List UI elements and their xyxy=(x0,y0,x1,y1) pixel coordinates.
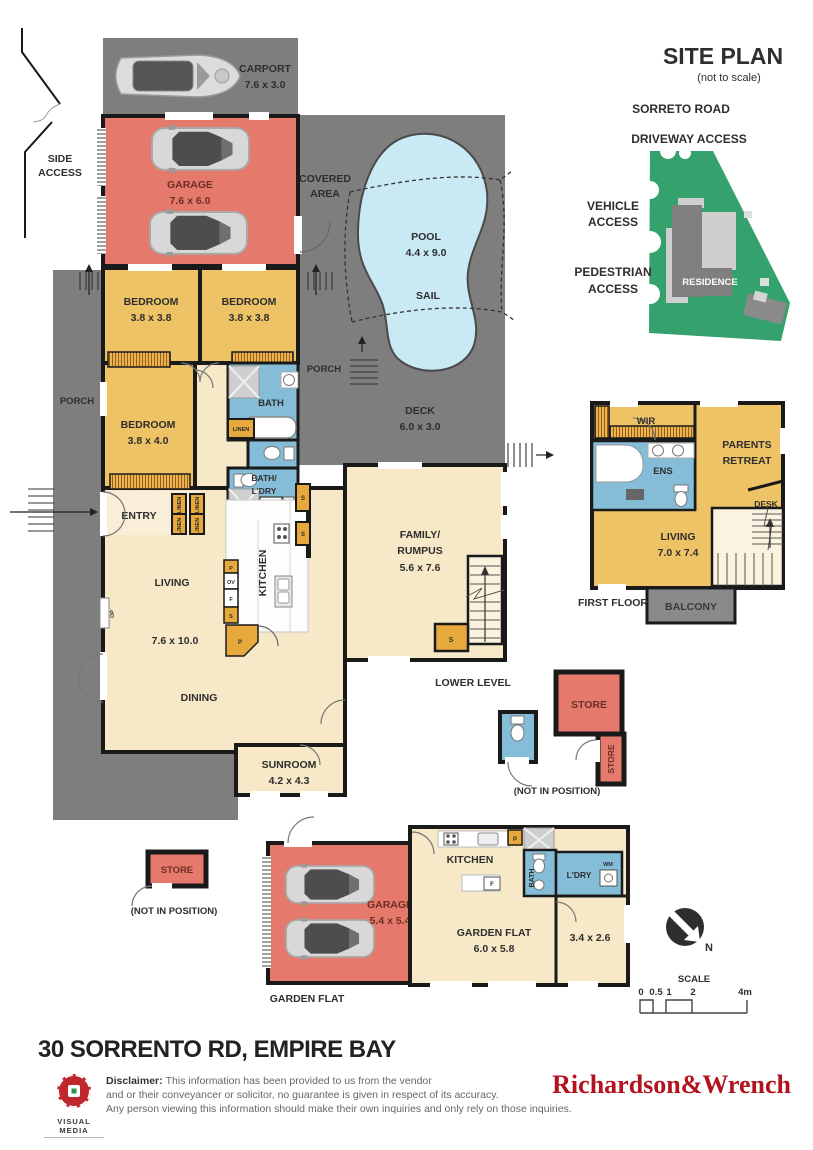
window xyxy=(700,400,738,407)
store-cupboard-label: S xyxy=(301,532,305,538)
pantry-label: P xyxy=(513,837,517,843)
road-label: SORRETO ROAD xyxy=(632,102,730,116)
store-cupboard-label: S xyxy=(229,614,233,620)
pedestrian-access-label: PEDESTRIAN xyxy=(574,265,651,279)
first-living-dims: 7.0 x 7.4 xyxy=(658,547,699,559)
car-icon xyxy=(152,125,249,173)
linen-label: LINEN xyxy=(195,518,201,535)
op-label: OP xyxy=(110,610,116,618)
garage-dims: 7.6 x 6.0 xyxy=(170,195,211,207)
visual-media-logo-text: VISUAL MEDIA xyxy=(44,1117,104,1135)
window xyxy=(598,584,626,591)
desk-label: DESK xyxy=(754,499,778,509)
vehicle-access-label: ACCESS xyxy=(588,215,638,229)
sunroom-label: SUNROOM xyxy=(262,759,317,771)
side-access-label: SIDE xyxy=(48,153,73,165)
door-arc xyxy=(576,740,596,760)
toilet-icon xyxy=(674,485,688,507)
flat-name-label: GARDEN FLAT xyxy=(457,927,532,939)
garage-door-gap xyxy=(165,112,213,120)
living-dims: 7.6 x 10.0 xyxy=(152,635,199,647)
pantry-label: P xyxy=(229,566,233,572)
bedroom-label: BEDROOM xyxy=(124,296,179,308)
basin-icon xyxy=(653,445,664,456)
floor-plan-canvas: SIDE ACCESS POOL 4.4 x 9.0 SAIL PORCH PO… xyxy=(0,0,813,1030)
living-label: LIVING xyxy=(154,577,189,589)
stairs xyxy=(466,556,504,644)
flat-room-dims: 3.4 x 2.6 xyxy=(570,932,611,944)
flat-garage-dims: 5.4 x 5.4 xyxy=(370,915,411,927)
window xyxy=(250,791,280,798)
footer: 30 SORRENTO RD, EMPIRE BAY VISUAL MEDIA … xyxy=(0,1030,813,1150)
toilet-icon xyxy=(511,716,524,741)
page-title: 30 SORRENTO RD, EMPIRE BAY xyxy=(38,1036,396,1064)
basin-icon xyxy=(673,445,684,456)
kitchen-bench xyxy=(438,831,510,847)
fridge-label: F xyxy=(490,882,494,888)
disclaimer: Disclaimer:This information has been pro… xyxy=(106,1074,576,1116)
store-label: STORE xyxy=(161,865,194,876)
door-arc xyxy=(132,886,152,906)
linen-label: LINEN xyxy=(177,497,183,514)
window xyxy=(568,981,598,988)
scale-tick: 0 xyxy=(638,987,643,998)
deck-label: DECK xyxy=(405,405,435,417)
disclaimer-line: Any person viewing this information shou… xyxy=(106,1102,576,1116)
agency-logo: Richardson&Wrench xyxy=(552,1070,791,1100)
scale-tick: 0.5 xyxy=(649,987,663,998)
bath-ldry-label: L'DRY xyxy=(252,486,277,496)
bedroom-dims: 3.8 x 3.8 xyxy=(131,312,172,324)
sunroom-dims: 4.2 x 4.3 xyxy=(269,775,310,787)
residence-label: RESIDENCE xyxy=(682,277,737,288)
window xyxy=(624,905,631,943)
fireplace xyxy=(100,598,109,628)
flat-kitchen-label: KITCHEN xyxy=(447,854,494,866)
first-living-label: LIVING xyxy=(660,531,695,543)
visual-media-rule xyxy=(44,1137,104,1140)
flat-bath-label: BATH xyxy=(529,869,536,888)
car-icon xyxy=(286,917,374,959)
window xyxy=(128,264,172,271)
entry-label: ENTRY xyxy=(121,510,156,522)
garage-roller-door xyxy=(262,856,271,968)
disclaimer-label: Disclaimer: xyxy=(106,1075,163,1087)
side-access-label: ACCESS xyxy=(38,167,82,179)
store-cupboard-label: S xyxy=(301,496,305,502)
wm-label: WM xyxy=(603,862,613,868)
visual-media-logo: VISUAL MEDIA xyxy=(44,1072,104,1140)
flat-ldry-label: L'DRY xyxy=(567,870,592,880)
shower xyxy=(524,828,554,852)
boat-icon xyxy=(116,55,240,97)
door-arc xyxy=(508,762,532,786)
porch-right-label: PORCH xyxy=(307,364,341,375)
family-label: FAMILY/ xyxy=(400,529,441,541)
driveway-access-label: DRIVEWAY ACCESS xyxy=(631,132,747,146)
scale-tick: 4m xyxy=(738,987,752,998)
family-label: RUMPUS xyxy=(397,545,443,557)
porch-left-label: PORCH xyxy=(60,396,94,407)
linen-label: LINEN xyxy=(233,427,250,433)
door-gap xyxy=(152,883,172,889)
site-plan-title: SITE PLAN xyxy=(663,43,783,69)
sink-icon xyxy=(275,576,292,607)
scale-tick: 2 xyxy=(690,987,695,998)
scale-bar xyxy=(640,1000,747,1013)
store-label: STORE xyxy=(606,744,616,773)
window xyxy=(300,791,328,798)
window xyxy=(780,428,787,454)
bedroom-label: BEDROOM xyxy=(121,419,176,431)
car-icon xyxy=(286,863,374,905)
basin-icon xyxy=(284,375,295,386)
site-plan-subtitle: (not to scale) xyxy=(697,72,761,84)
parents-retreat-label: RETREAT xyxy=(723,455,772,467)
window xyxy=(430,981,472,988)
sail-label: SAIL xyxy=(416,290,441,302)
bath-ldry-label: BATH/ xyxy=(251,473,277,483)
pantry-label: P xyxy=(238,640,242,646)
first-floor-label: FIRST FLOOR xyxy=(578,597,648,609)
garage-label: GARAGE xyxy=(167,179,213,191)
sliding-door-gap xyxy=(378,462,422,469)
window xyxy=(501,515,508,539)
wir-label: WIR xyxy=(637,416,656,427)
side-access-boundary xyxy=(22,28,60,238)
visual-media-logo-icon xyxy=(55,1072,93,1110)
flat-dims: 6.0 x 5.8 xyxy=(474,943,515,955)
not-in-position-label: (NOT IN POSITION) xyxy=(514,786,601,797)
garden-flat-label: GARDEN FLAT xyxy=(270,993,345,1005)
covered-area-label: AREA xyxy=(310,188,340,200)
carport-label: CARPORT xyxy=(239,63,292,75)
store-label: STORE xyxy=(571,699,607,711)
dining-label: DINING xyxy=(181,692,218,704)
pool-dims: 4.4 x 9.0 xyxy=(406,247,447,259)
covered-area-label: COVERED xyxy=(299,173,351,185)
flat-garage xyxy=(268,843,410,983)
bedroom-dims: 3.8 x 4.0 xyxy=(128,435,169,447)
ensuite-label: ENS xyxy=(653,466,673,477)
door-gap xyxy=(594,740,600,762)
car-icon xyxy=(150,209,247,257)
disclaimer-line: This information has been provided to us… xyxy=(166,1075,432,1087)
family-dims: 5.6 x 7.6 xyxy=(400,562,441,574)
window xyxy=(100,382,107,416)
garage-door-gap xyxy=(249,112,269,120)
deck-dims: 6.0 x 3.0 xyxy=(400,421,441,433)
scale-label: SCALE xyxy=(678,974,710,985)
cooktop-icon xyxy=(274,524,289,543)
north-arrow-icon xyxy=(666,908,704,946)
scale-tick: 1 xyxy=(666,987,672,998)
vehicle-access-label: VEHICLE xyxy=(587,199,639,213)
pool-label: POOL xyxy=(411,231,441,243)
window xyxy=(488,981,536,988)
flat-garage-label: GARAGE xyxy=(367,899,413,911)
garage-side-door-gap xyxy=(294,216,302,254)
floor-plan-page: SIDE ACCESS POOL 4.4 x 9.0 SAIL PORCH PO… xyxy=(0,0,813,1150)
washing-machine xyxy=(600,870,617,886)
window xyxy=(368,656,410,663)
kitchen-label: KITCHEN xyxy=(257,550,269,597)
carport-dims: 7.6 x 3.0 xyxy=(245,79,286,91)
north-label: N xyxy=(705,942,713,954)
linen-label: LINEN xyxy=(195,497,201,514)
lower-level-label: LOWER LEVEL xyxy=(435,677,511,689)
garden-flat-unit xyxy=(410,827,628,985)
spa-bath xyxy=(596,445,643,482)
bedroom-dims: 3.8 x 3.8 xyxy=(229,312,270,324)
oven-label: OV xyxy=(227,580,235,586)
bath-label: BATH xyxy=(258,398,284,409)
balcony-label: BALCONY xyxy=(665,601,717,613)
cabinet xyxy=(626,489,644,500)
parents-retreat-label: PARENTS xyxy=(722,439,771,451)
pedestrian-access-label: ACCESS xyxy=(588,282,638,296)
disclaimer-line: and or their conveyancer or solicitor, n… xyxy=(106,1088,576,1102)
window xyxy=(501,472,508,506)
not-in-position-label: (NOT IN POSITION) xyxy=(131,906,218,917)
linen-label: LINEN xyxy=(177,518,183,535)
store-cupboard-label: S xyxy=(449,637,454,644)
window xyxy=(610,400,638,407)
bedroom-label: BEDROOM xyxy=(222,296,277,308)
window xyxy=(222,264,266,271)
